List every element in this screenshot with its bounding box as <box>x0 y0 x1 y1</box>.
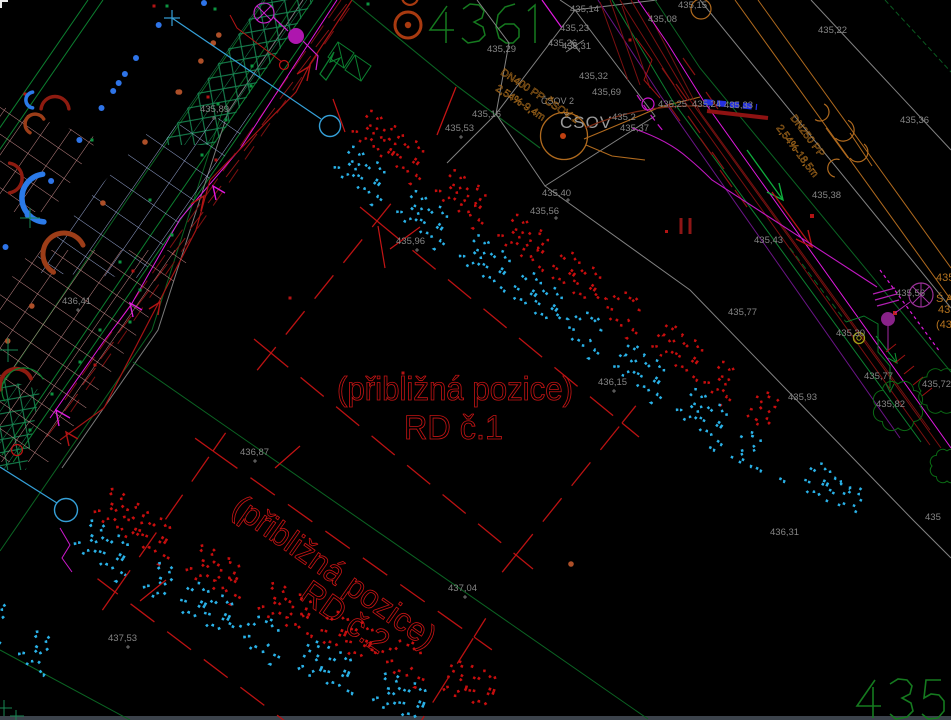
svg-text:(43: (43 <box>936 319 951 331</box>
svg-text:435,29: 435,29 <box>487 44 516 55</box>
svg-text:435,22: 435,22 <box>818 25 847 36</box>
svg-text:435,96: 435,96 <box>396 236 425 247</box>
svg-text:435,69: 435,69 <box>592 87 621 98</box>
svg-text:435,40: 435,40 <box>542 188 571 199</box>
svg-text:436,41: 436,41 <box>62 296 91 307</box>
svg-text:435,14: 435,14 <box>570 4 599 15</box>
svg-text:435,38: 435,38 <box>812 190 841 201</box>
svg-text:437,04: 437,04 <box>448 583 477 594</box>
svg-text:435,33: 435,33 <box>724 100 753 111</box>
svg-text:435,56: 435,56 <box>530 206 559 217</box>
svg-text:435: 435 <box>938 304 951 316</box>
svg-text:436,15: 436,15 <box>598 377 627 388</box>
svg-text:435,23: 435,23 <box>560 23 589 34</box>
svg-text:435,89: 435,89 <box>200 104 229 115</box>
svg-text:435,24: 435,24 <box>692 99 721 110</box>
svg-text:435,72: 435,72 <box>922 379 951 390</box>
svg-text:435,08: 435,08 <box>648 14 677 25</box>
svg-text:435,15: 435,15 <box>678 0 707 11</box>
svg-text:435: 435 <box>936 272 951 284</box>
svg-text:437,53: 437,53 <box>108 633 137 644</box>
svg-text:435,32: 435,32 <box>579 71 608 82</box>
svg-text:RD č.1: RD č.1 <box>404 409 503 447</box>
svg-text:435,43: 435,43 <box>754 235 783 246</box>
svg-text:435,56: 435,56 <box>896 288 925 299</box>
svg-text:435,30: 435,30 <box>836 328 865 339</box>
svg-text:435,25: 435,25 <box>658 99 687 110</box>
svg-text:435,31: 435,31 <box>562 41 591 52</box>
svg-text:435,53: 435,53 <box>445 123 474 134</box>
svg-text:(přibližná pozice): (přibližná pozice) <box>337 370 573 407</box>
svg-text:435,2: 435,2 <box>612 112 636 123</box>
svg-text:436,87: 436,87 <box>240 447 269 458</box>
svg-text:435,36: 435,36 <box>900 115 929 126</box>
svg-text:436,31: 436,31 <box>770 527 799 538</box>
svg-text:435,93: 435,93 <box>788 392 817 403</box>
svg-text:435,82: 435,82 <box>876 399 905 410</box>
svg-text:435,37: 435,37 <box>620 123 649 134</box>
svg-text:435: 435 <box>925 512 941 523</box>
svg-text:435,16: 435,16 <box>472 109 501 120</box>
svg-text:435,77: 435,77 <box>864 371 893 382</box>
svg-text:435,77: 435,77 <box>728 307 757 318</box>
